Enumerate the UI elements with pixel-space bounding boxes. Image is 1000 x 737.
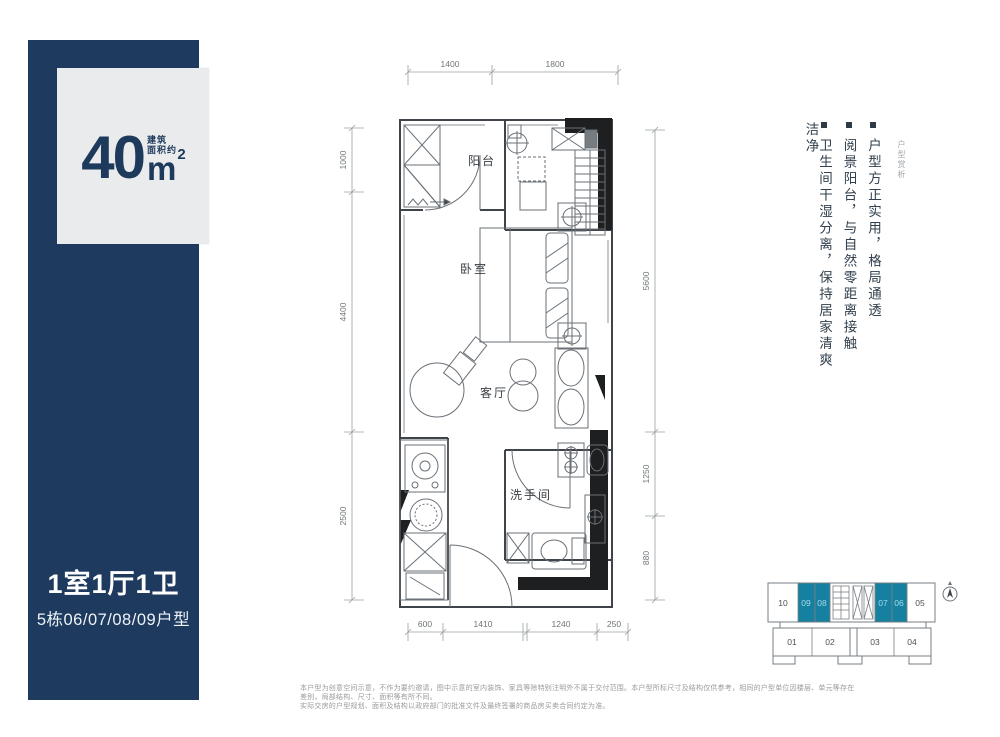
room-label-balcony: 阳台 <box>468 153 496 168</box>
area-unit-block: 建筑 面积约 m 2 <box>147 135 185 182</box>
disclaimer-line-1: 本户型为创意空间示意，不作为要约邀请，图中示意的室内装饰、家具等除特别注明外不属… <box>300 684 860 702</box>
feature-item-3: 卫生间干湿分离，保持居家清爽洁净 <box>804 122 831 372</box>
unit-04: 04 <box>907 637 917 647</box>
feature-item-2: 阅景阳台，与自然零距离接触 <box>842 122 856 372</box>
dim-top-2: 1800 <box>546 59 565 69</box>
room-label-bathroom: 洗手间 <box>510 488 552 502</box>
disclaimer-line-2: 实际交房的户型规划、面积及结构以政府部门的批准文件及最终签署的商品房买卖合同约定… <box>300 702 860 711</box>
dim-left-2: 4400 <box>338 302 348 321</box>
unit-07: 07 <box>878 598 888 608</box>
dim-left-3: 2500 <box>338 506 348 525</box>
dim-right-3: 880 <box>641 551 651 565</box>
dim-top-1: 1400 <box>441 59 460 69</box>
dim-right-1: 5600 <box>641 271 651 290</box>
feature-item-1: 户型方正实用，格局通透 <box>867 122 881 372</box>
feature-list: 户型赏析 户型方正实用，格局通透 阅景阳台，与自然零距离接触 卫生间干湿分离，保… <box>793 122 907 372</box>
unit-09: 09 <box>801 598 811 608</box>
unit-02: 02 <box>825 637 835 647</box>
floorplan-poster: 40 建筑 面积约 m 2 1室1厅1卫 5栋06/07/08/09户型 <box>0 0 1000 737</box>
disclaimer: 本户型为创意空间示意，不作为要约邀请，图中示意的室内装饰、家具等除特别注明外不属… <box>300 684 860 711</box>
feature-text-2: 阅景阳台，与自然零距离接触 <box>842 138 857 353</box>
feature-section-label: 户型赏析 <box>896 122 907 372</box>
dim-bottom-1: 600 <box>418 619 432 629</box>
unit-type-title: 1室1厅1卫 <box>28 562 199 601</box>
unit-08: 08 <box>817 598 827 608</box>
area-unit: m <box>147 156 176 182</box>
area-superscript: 2 <box>177 146 185 163</box>
room-label-living: 客厅 <box>480 385 508 400</box>
feature-text-1: 户型方正实用，格局通透 <box>866 138 881 320</box>
dim-bottom-4: 250 <box>607 619 621 629</box>
unit-type-subtitle: 5栋06/07/08/09户型 <box>28 606 199 630</box>
bullet-icon <box>846 122 852 128</box>
bullet-icon <box>821 122 827 128</box>
area-figure: 40 建筑 面积约 m 2 <box>57 134 209 182</box>
area-unit-row: m 2 <box>147 156 185 182</box>
area-value: 40 <box>81 134 144 182</box>
compass-icon <box>943 581 957 601</box>
area-card: 40 建筑 面积约 m 2 <box>57 68 209 244</box>
floorplan-drawing: 1400 1800 1000 4400 2500 5600 1250 880 6… <box>330 55 680 655</box>
dim-right-2: 1250 <box>641 464 651 483</box>
dim-left-1: 1000 <box>338 150 348 169</box>
bullet-icon <box>870 122 876 128</box>
sidebar-panel: 40 建筑 面积约 m 2 1室1厅1卫 5栋06/07/08/09户型 <box>28 40 199 700</box>
door-swings <box>425 155 570 607</box>
unit-06: 06 <box>894 598 904 608</box>
unit-10: 10 <box>778 598 788 608</box>
dim-bottom-3: 1240 <box>552 619 571 629</box>
dim-bottom-2: 1410 <box>474 619 493 629</box>
unit-03: 03 <box>870 637 880 647</box>
feature-text-3: 卫生间干湿分离，保持居家清爽洁净 <box>804 122 833 369</box>
keyplan-outline <box>768 583 935 664</box>
area-label-line1: 建筑 <box>147 135 167 145</box>
unit-05: 05 <box>915 598 925 608</box>
room-label-bedroom: 卧室 <box>460 261 488 276</box>
building-keyplan: 10 09 08 07 06 05 01 02 03 04 <box>758 578 968 670</box>
unit-01: 01 <box>787 637 797 647</box>
